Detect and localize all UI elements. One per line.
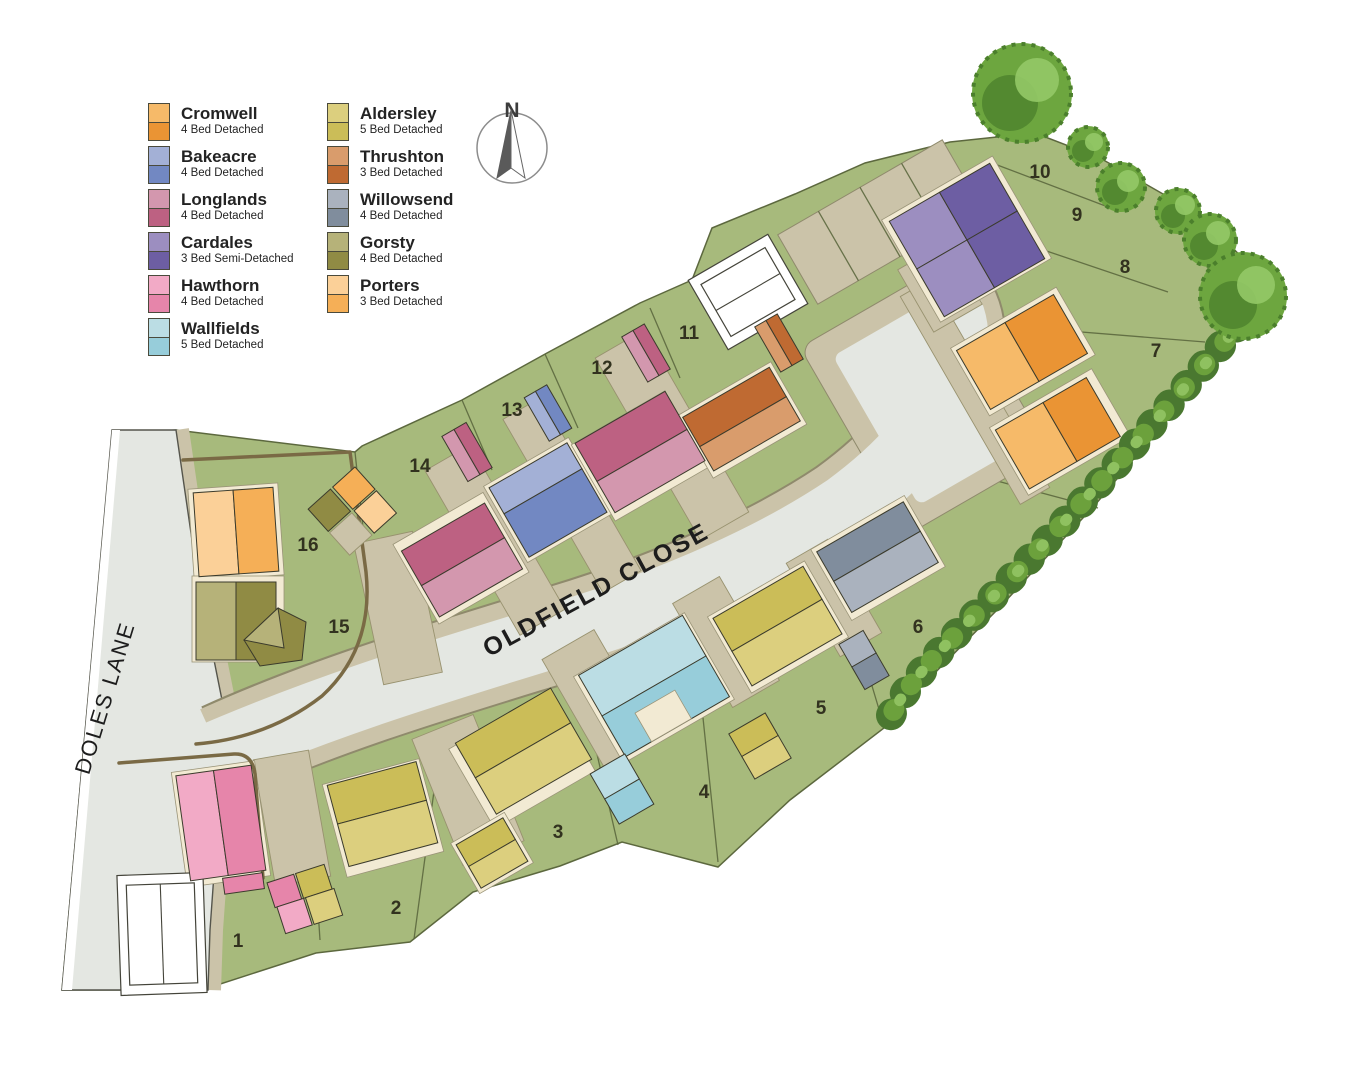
legend-house-name: Porters: [360, 276, 442, 295]
plot-number-9: 9: [1072, 205, 1083, 226]
legend-house-spec: 5 Bed Detached: [181, 338, 263, 352]
plot-number-6: 6: [913, 617, 924, 638]
plot-number-8: 8: [1120, 257, 1131, 278]
tree: [1199, 252, 1287, 340]
swatch-dark: [149, 123, 169, 141]
plot-number-5: 5: [816, 698, 827, 719]
legend-house-spec: 4 Bed Detached: [360, 252, 442, 266]
legend-swatch: [327, 189, 349, 227]
legend-house-name: Aldersley: [360, 104, 442, 123]
legend-house-spec: 4 Bed Detached: [181, 295, 263, 309]
plot-number-1: 1: [233, 931, 244, 952]
visitor-parking-south: [117, 873, 207, 996]
legend-swatch: [148, 232, 170, 270]
legend-item: Thrushton 3 Bed Detached: [327, 146, 506, 184]
swatch-light: [328, 276, 348, 295]
site-plan: OLDFIELD CLOSE DOLES LANE 1 2 3 4 5 6 7 …: [0, 0, 1359, 1080]
legend-item: Gorsty 4 Bed Detached: [327, 232, 506, 270]
house-plot-16: [193, 487, 279, 576]
legend-item: Cardales 3 Bed Semi-Detached: [148, 232, 327, 270]
plot-number-10: 10: [1029, 162, 1050, 183]
plot-number-4: 4: [699, 782, 710, 803]
swatch-dark: [149, 166, 169, 184]
legend-item: Porters 3 Bed Detached: [327, 275, 506, 313]
swatch-light: [328, 233, 348, 252]
plot-number-7: 7: [1151, 341, 1162, 362]
legend-house-name: Longlands: [181, 190, 267, 209]
legend-house-name: Thrushton: [360, 147, 444, 166]
legend-item: Hawthorn 4 Bed Detached: [148, 275, 327, 313]
swatch-dark: [328, 252, 348, 270]
legend-house-spec: 5 Bed Detached: [360, 123, 442, 137]
legend-swatch: [148, 189, 170, 227]
swatch-light: [328, 147, 348, 166]
legend-house-name: Willowsend: [360, 190, 453, 209]
legend-swatch: [327, 232, 349, 270]
swatch-light: [328, 104, 348, 123]
plot-number-15: 15: [328, 617, 350, 638]
legend-house-spec: 4 Bed Detached: [181, 123, 263, 137]
swatch-light: [149, 233, 169, 252]
legend-house-name: Bakeacre: [181, 147, 263, 166]
legend-house-spec: 4 Bed Detached: [181, 209, 267, 223]
swatch-dark: [149, 295, 169, 313]
swatch-light: [149, 276, 169, 295]
tree: [1096, 162, 1146, 212]
swatch-dark: [149, 338, 169, 356]
swatch-light: [328, 190, 348, 209]
swatch-dark: [328, 166, 348, 184]
legend-item: Bakeacre 4 Bed Detached: [148, 146, 327, 184]
legend-house-spec: 4 Bed Detached: [181, 166, 263, 180]
swatch-dark: [149, 252, 169, 270]
swatch-light: [149, 147, 169, 166]
legend-house-name: Gorsty: [360, 233, 442, 252]
legend-item: Aldersley 5 Bed Detached: [327, 103, 506, 141]
legend-swatch: [327, 146, 349, 184]
legend-swatch: [148, 318, 170, 356]
swatch-dark: [328, 123, 348, 141]
plot-number-14: 14: [409, 456, 431, 477]
legend-house-spec: 3 Bed Semi-Detached: [181, 252, 294, 266]
swatch-light: [149, 190, 169, 209]
plot-number-12: 12: [591, 358, 612, 379]
tree: [1067, 126, 1109, 168]
swatch-light: [149, 104, 169, 123]
swatch-dark: [149, 209, 169, 227]
tree: [972, 43, 1072, 143]
legend-item: Wallfields 5 Bed Detached: [148, 318, 327, 356]
legend-swatch: [148, 275, 170, 313]
legend-swatch: [327, 275, 349, 313]
legend-house-spec: 3 Bed Detached: [360, 166, 444, 180]
legend-swatch: [327, 103, 349, 141]
swatch-light: [149, 319, 169, 338]
legend-house-name: Cardales: [181, 233, 294, 252]
legend-item: Longlands 4 Bed Detached: [148, 189, 327, 227]
plot-number-2: 2: [391, 898, 402, 919]
legend-column-2: Aldersley 5 Bed Detached Thrushton 3 Bed…: [327, 103, 506, 356]
swatch-dark: [328, 295, 348, 313]
legend-house-spec: 4 Bed Detached: [360, 209, 453, 223]
swatch-dark: [328, 209, 348, 227]
legend: Cromwell 4 Bed Detached Bakeacre 4 Bed D…: [148, 103, 506, 356]
legend-house-name: Hawthorn: [181, 276, 263, 295]
plot-number-13: 13: [501, 400, 522, 421]
legend-item: Willowsend 4 Bed Detached: [327, 189, 506, 227]
legend-house-spec: 3 Bed Detached: [360, 295, 442, 309]
legend-swatch: [148, 103, 170, 141]
legend-item: Cromwell 4 Bed Detached: [148, 103, 327, 141]
plot-number-16: 16: [297, 535, 318, 556]
plot-number-3: 3: [553, 822, 564, 843]
legend-column-1: Cromwell 4 Bed Detached Bakeacre 4 Bed D…: [148, 103, 327, 356]
plot-number-11: 11: [679, 323, 700, 344]
legend-swatch: [148, 146, 170, 184]
legend-house-name: Wallfields: [181, 319, 263, 338]
legend-house-name: Cromwell: [181, 104, 263, 123]
